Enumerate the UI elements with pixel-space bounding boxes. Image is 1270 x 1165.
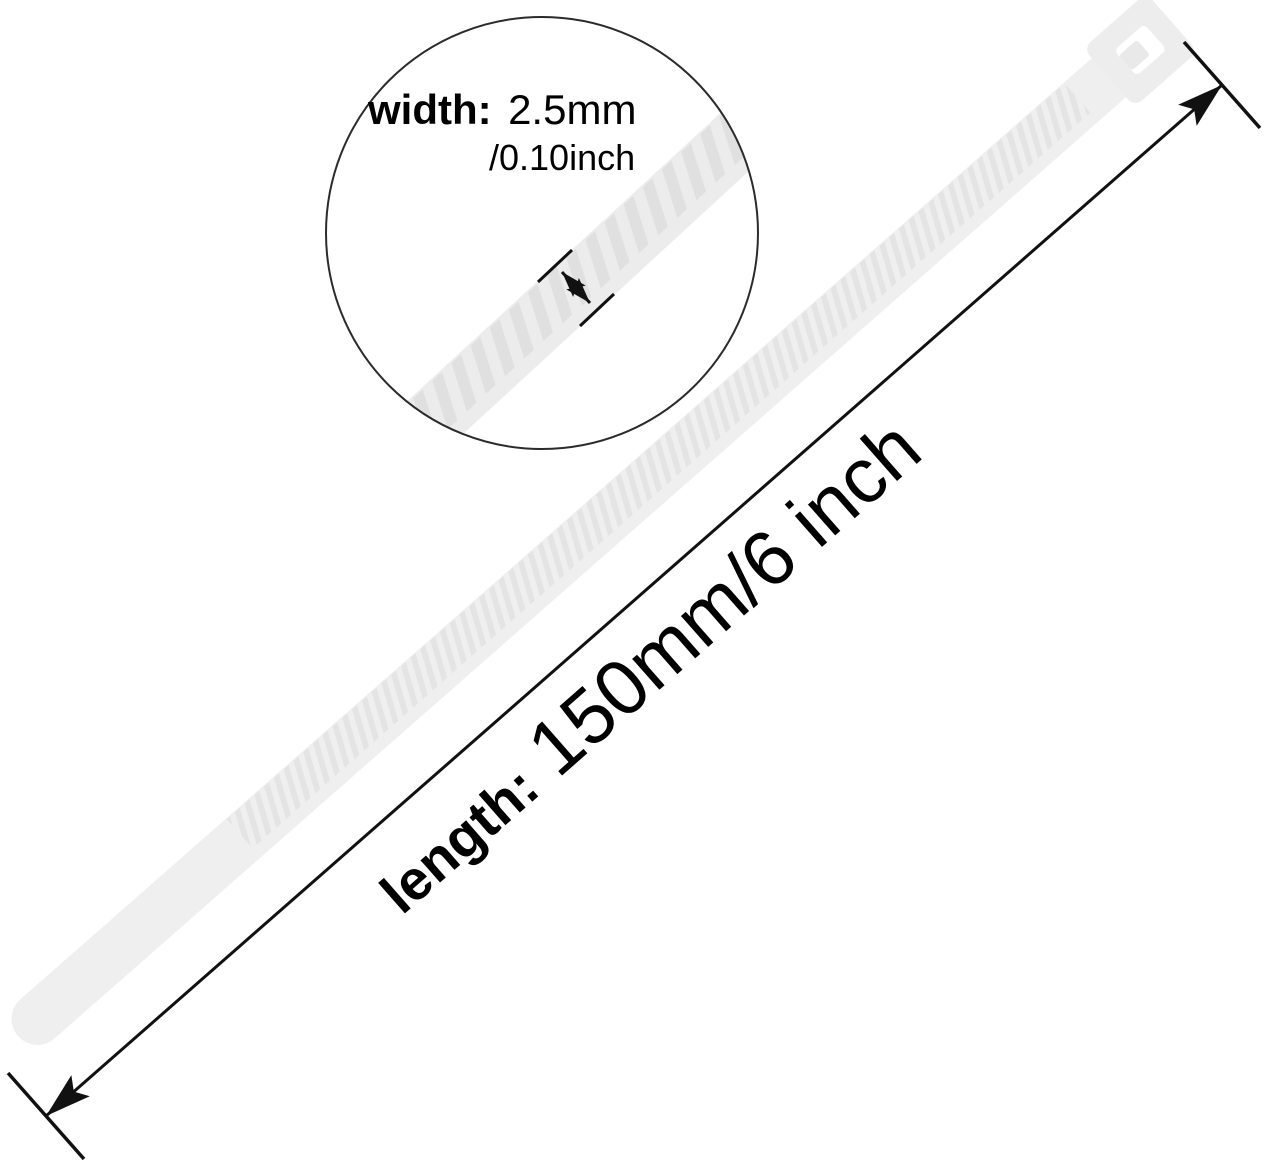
width-label: width: <box>367 86 492 133</box>
width-value-mm: 2.5mm <box>508 86 636 133</box>
length-value: 150mm/6 inch <box>511 403 937 792</box>
length-label: length: <box>368 755 550 926</box>
width-callout-line1: width: 2.5mm <box>367 86 636 133</box>
width-value-inch: /0.10inch <box>489 137 635 178</box>
cable-tie-dimension-diagram: width: 2.5mm /0.10inch length: 150mm/6 i… <box>0 0 1270 1165</box>
product-image-canvas: width: 2.5mm /0.10inch length: 150mm/6 i… <box>0 0 1270 1165</box>
magnifier-circle <box>326 17 758 449</box>
